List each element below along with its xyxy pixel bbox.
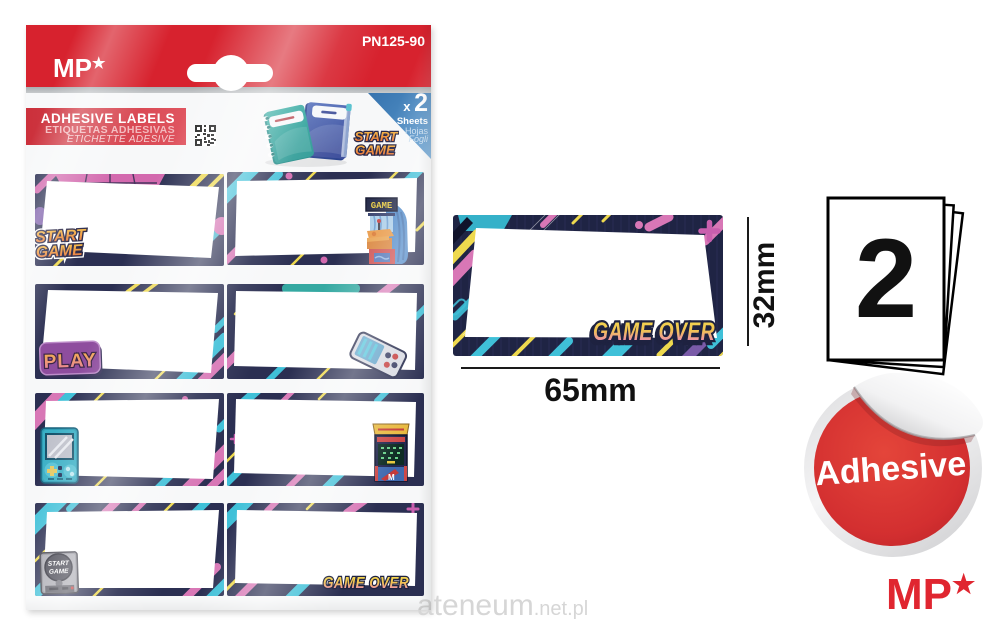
svg-text:START: START (48, 560, 70, 568)
svg-text:GAME: GAME (371, 201, 393, 211)
svg-text:GAME: GAME (36, 242, 84, 261)
svg-text:GAME OVER: GAME OVER (323, 575, 409, 592)
svg-text:GAME OVER: GAME OVER (593, 318, 715, 346)
svg-text:GAME: GAME (355, 142, 396, 157)
svg-text:2: 2 (855, 216, 917, 341)
svg-text:M: M (388, 473, 395, 482)
svg-text:PLAY: PLAY (43, 350, 97, 373)
svg-text:GAME: GAME (49, 568, 69, 576)
